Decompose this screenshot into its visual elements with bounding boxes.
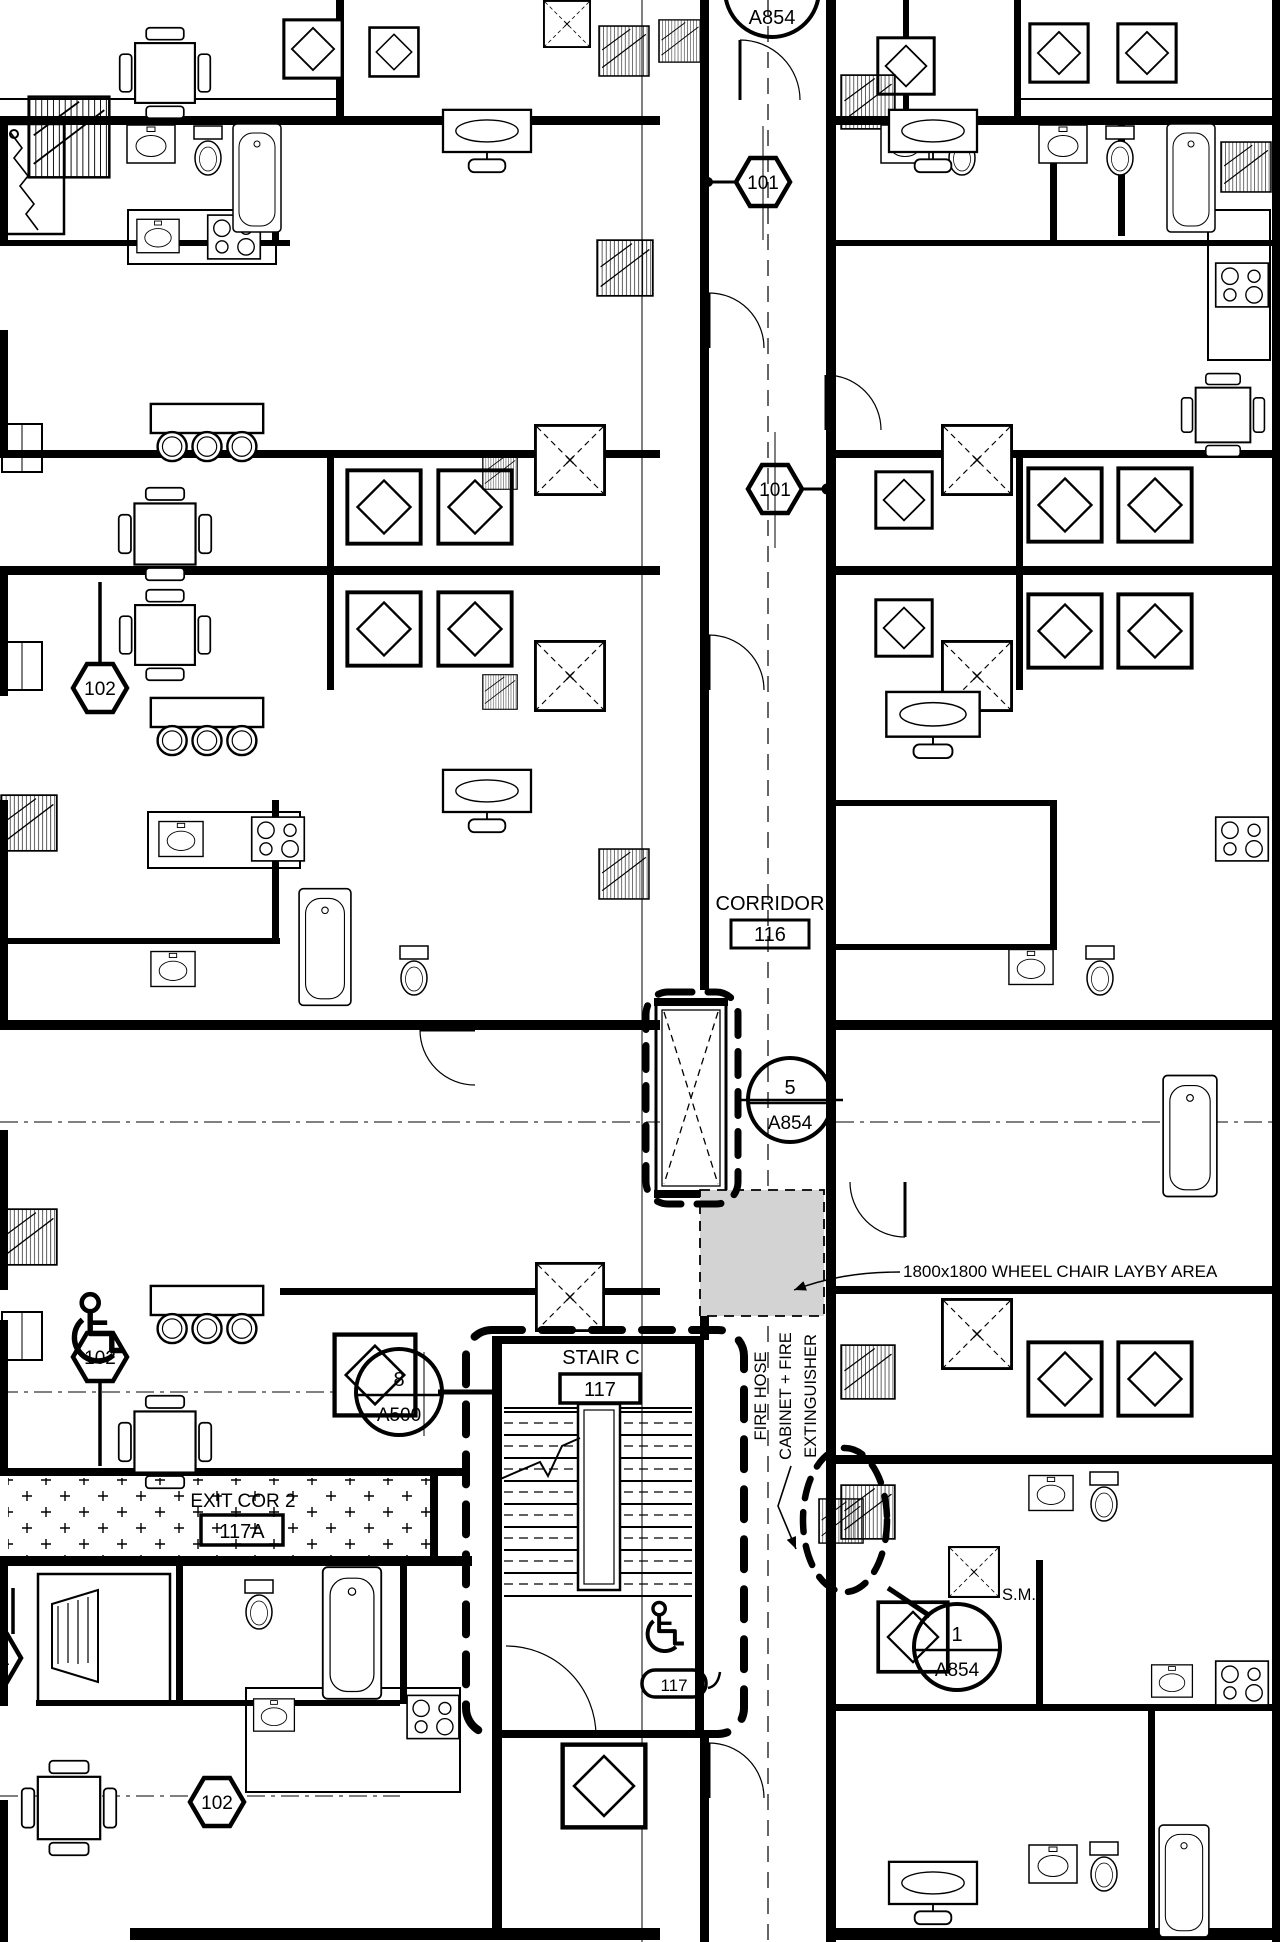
grid-tag-101-top: 101 [703, 126, 790, 240]
lounge-chair-symbol [438, 592, 511, 665]
wardrobe-hatch-symbol [599, 849, 649, 899]
stove-burners [407, 1695, 459, 1738]
lounge-chair-symbol [1028, 468, 1101, 541]
grid-tag-101-left-label: 101 [0, 1649, 10, 1670]
kitchen-sink [159, 822, 203, 857]
wardrobe-hatch-symbol [1221, 142, 1271, 192]
dining-table [1182, 374, 1265, 457]
stove-burners [252, 817, 305, 861]
wheelchair-layby: 1800x1800 WHEEL CHAIR LAYBY AREA [700, 1190, 1218, 1316]
wardrobe-hatch-symbol [483, 455, 518, 490]
closet-xbox-symbol [949, 1547, 999, 1597]
grid-tag-101-top-label: 101 [747, 173, 779, 194]
exit-corridor-name: EXIT COR 2 [190, 1491, 295, 1512]
stove-burners [1216, 1661, 1269, 1705]
fire-note-line1: FIRE HOSE [752, 1352, 770, 1441]
corridor-shaft [654, 998, 728, 1198]
corridor-name: CORRIDOR [716, 893, 825, 915]
toilet [1086, 946, 1114, 995]
bathroom-sink [1009, 950, 1053, 985]
bathtub [233, 124, 281, 232]
stair-door-tag: 117 [642, 1670, 720, 1697]
lounge-chair-symbol [563, 1745, 646, 1828]
toilet [400, 946, 428, 995]
fire-note-leader [778, 1466, 796, 1549]
fire-note-line3: EXTINGUISHER [802, 1334, 820, 1458]
detail-marker-top: A854 [725, 0, 819, 37]
bathtub [1167, 124, 1215, 232]
detail-markers: A854 5 A854 8 A500 1 A854 [356, 0, 1000, 1690]
desk-with-chair [889, 1862, 977, 1924]
lounge-chair-symbol [1028, 1342, 1101, 1415]
detail-marker-stair-num: 8 [393, 1369, 404, 1391]
wardrobe-hatch-symbol [599, 26, 649, 76]
kitchen-island-stools [151, 1286, 263, 1343]
grid-tag-102-upper-label: 102 [84, 679, 116, 700]
lounge-chair-symbol [284, 20, 342, 78]
kitchen-island-stools [151, 698, 263, 755]
detail-marker-top-sheet: A854 [749, 7, 796, 29]
furniture [1, 1, 1271, 1937]
lounge-chair-symbol [370, 28, 419, 77]
grid-tag-101-mid: 101 [748, 432, 833, 548]
kitchen-island-stools [151, 404, 263, 461]
desk-with-chair [443, 770, 531, 832]
bathtub [323, 1567, 381, 1699]
accessible-shower [38, 1574, 170, 1702]
corridor-label: CORRIDOR 116 [716, 893, 825, 948]
closet-xbox-symbol [942, 1299, 1011, 1368]
wardrobe-hatch-symbol [841, 1345, 895, 1399]
lounge-chair-symbol [1118, 594, 1191, 667]
toilet [1106, 126, 1134, 175]
shaft-cap [654, 998, 728, 1006]
bathtub [299, 889, 351, 1006]
lounge-chair-symbol [1118, 468, 1191, 541]
bathroom-sink [127, 125, 175, 163]
closet-xbox-symbol [942, 425, 1011, 494]
bathtub [1159, 1825, 1209, 1937]
lounge-chair-symbol [1118, 1342, 1191, 1415]
wardrobe-hatch-symbol [1, 1209, 57, 1265]
fire-note-line2: CABINET + FIRE [777, 1332, 795, 1460]
dining-table [120, 590, 211, 681]
detail-marker-cabinet-num: 1 [951, 1624, 962, 1646]
stair-c: 117 [498, 1404, 720, 1697]
grid-tag-101-mid-label: 101 [759, 480, 791, 501]
desk-with-chair [443, 110, 531, 172]
floor-plan-page: 117 1800x1800 WHEEL CHAIR LAYBY AREA FIR… [0, 0, 1280, 1942]
lounge-chair-symbol [1028, 594, 1101, 667]
lounge-chair-symbol [876, 472, 932, 528]
lounge-chair-symbol [876, 600, 932, 656]
wheelchair-refuge-icon [648, 1602, 684, 1651]
toilet [194, 126, 222, 175]
stair-label: STAIR C 117 [560, 1347, 640, 1403]
kitchen-sink [254, 1699, 295, 1731]
closet-xbox-symbol [536, 1263, 603, 1330]
detail-marker-stair-sheet: A500 [377, 1405, 421, 1426]
toilet [1090, 1842, 1118, 1891]
stove-burners [1216, 817, 1269, 861]
shower-tall [1163, 1076, 1217, 1197]
wardrobe-hatch-symbol [659, 20, 701, 62]
similar-note: S.M. [1002, 1586, 1036, 1604]
wardrobe-hatch-symbol [841, 75, 895, 129]
wardrobe-hatch-symbol [1, 795, 57, 851]
stair-name: STAIR C [562, 1347, 639, 1369]
wall-segments-horizontal [0, 98, 1280, 1940]
stove-burners [1216, 263, 1269, 307]
lounge-chair-symbol [1118, 24, 1176, 82]
layby-note: 1800x1800 WHEEL CHAIR LAYBY AREA [903, 1262, 1218, 1281]
kitchen-sink [1152, 1665, 1193, 1697]
exit-corridor-number: 117A [219, 1521, 265, 1543]
grid-tag-102-bottom: 102 [190, 1778, 244, 1826]
closet-xbox-symbol [544, 1, 590, 47]
desk-with-chair [886, 692, 979, 758]
grid-tag-102-lower-label: 102 [84, 1348, 116, 1369]
grid-tag-102-bottom-label: 102 [201, 1793, 233, 1814]
bathroom-sink [1039, 125, 1087, 163]
shaft-x [664, 1012, 718, 1184]
closet-xbox-symbol [535, 641, 604, 710]
wardrobe-hatch-symbol [29, 97, 110, 178]
fire-cabinet-fixture [819, 1499, 863, 1543]
dining-table [22, 1761, 116, 1855]
bathroom-sink [1029, 1845, 1077, 1883]
toilet [245, 1580, 273, 1629]
lounge-chair-symbol [347, 470, 420, 543]
wardrobe-hatch-symbol [483, 675, 518, 710]
bathroom-sink [151, 952, 195, 987]
closet-xbox-symbol [535, 425, 604, 494]
lounge-chair-symbol [347, 592, 420, 665]
corridor-number: 116 [754, 924, 786, 946]
stair-number: 117 [584, 1379, 616, 1401]
wardrobe-hatch-symbol [597, 240, 653, 296]
detail-marker-corridor-sheet: A854 [768, 1113, 813, 1134]
floor-plan-drawing: 117 1800x1800 WHEEL CHAIR LAYBY AREA FIR… [0, 0, 1280, 1942]
bathroom-sink [1029, 1476, 1073, 1511]
detail-marker-cabinet-sheet: A854 [935, 1660, 980, 1681]
kitchen-sink [137, 219, 179, 252]
detail-marker-corridor-num: 5 [784, 1077, 795, 1099]
dining-table [120, 28, 211, 119]
lounge-chair-symbol [1030, 24, 1088, 82]
stair-door-tag-label: 117 [660, 1676, 687, 1695]
layby-area-fill [700, 1190, 824, 1316]
toilet [1090, 1472, 1118, 1521]
